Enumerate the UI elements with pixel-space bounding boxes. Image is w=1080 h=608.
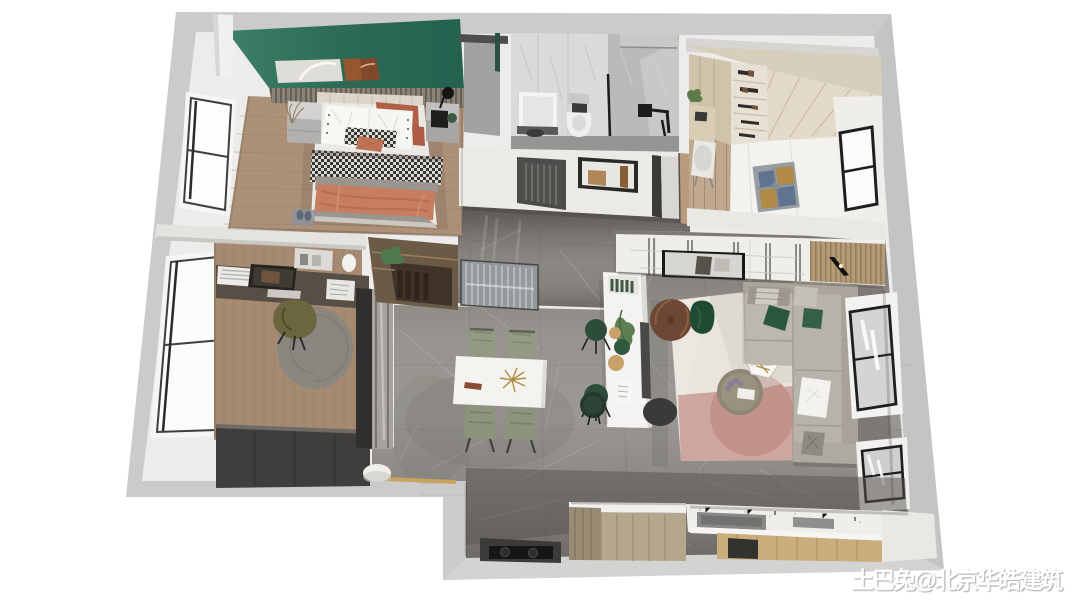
svg-text:土巴兔@北京华皓建筑: 土巴兔@北京华皓建筑 (851, 567, 1063, 593)
